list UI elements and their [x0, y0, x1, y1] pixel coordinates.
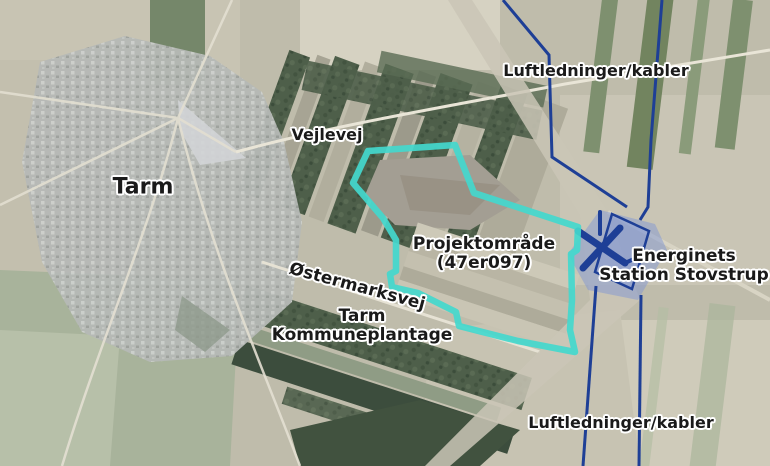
label-town-tarm: Tarm: [113, 176, 174, 201]
label-powerlines-bottom: Luftledninger/kabler: [528, 414, 713, 432]
label-station-line1: Energinets: [599, 247, 769, 266]
label-plantation-line2: Kommuneplantage: [272, 326, 453, 345]
label-project-area: Projektområde (47er097): [413, 235, 555, 273]
label-road-vejlevej: Vejlevej: [292, 126, 363, 144]
label-station: Energinets Station Stovstrup: [599, 247, 769, 285]
label-plantation: Tarm Kommuneplantage: [272, 307, 453, 345]
label-project-area-code: (47er097): [413, 254, 555, 273]
powerline-south-left: [583, 286, 596, 466]
label-powerlines-top: Luftledninger/kabler: [503, 62, 688, 80]
powerline-south-right: [639, 295, 641, 466]
powerline-northeast: [640, 0, 662, 220]
label-plantation-line1: Tarm: [272, 307, 453, 326]
label-station-line2: Station Stovstrup: [599, 266, 769, 285]
map-figure: Tarm Vejlevej Projektområde (47er097) Øs…: [0, 0, 770, 466]
label-project-area-name: Projektområde: [413, 235, 555, 254]
powerline-northwest: [503, 0, 627, 207]
